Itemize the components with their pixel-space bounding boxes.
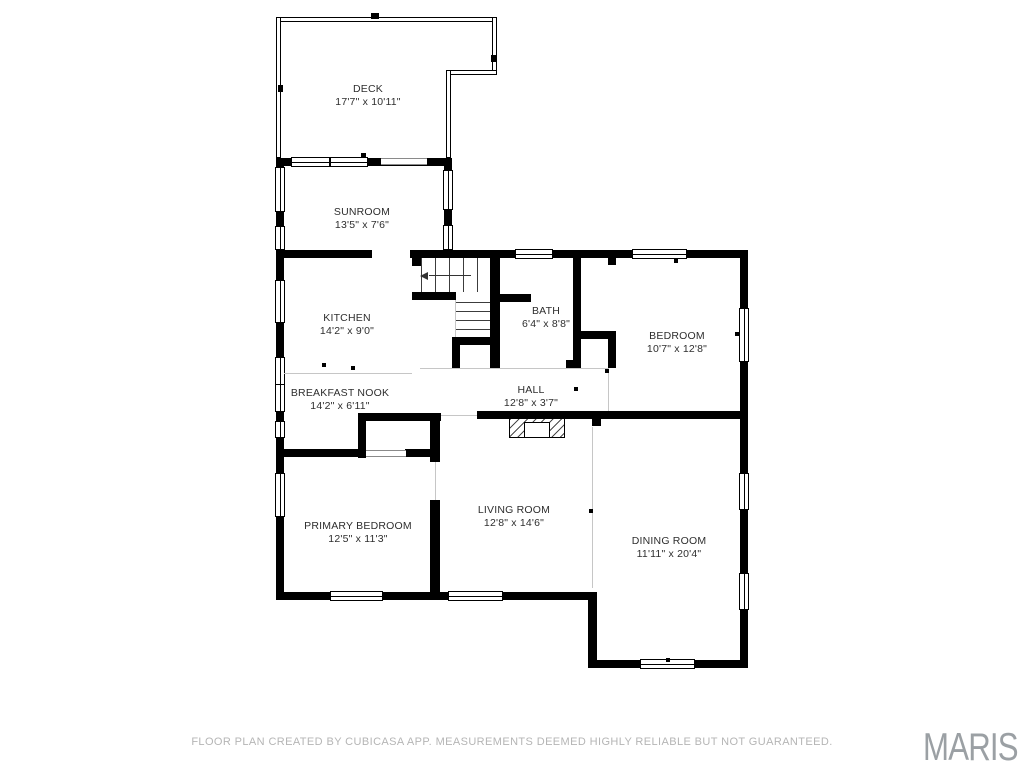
wall: [573, 250, 581, 368]
window: [739, 308, 749, 362]
room-boundary-line: [435, 462, 436, 500]
deck-rail-top: [276, 17, 497, 22]
junction-dot: [486, 413, 490, 417]
window: [515, 249, 553, 259]
room-dims: 12'5" x 11'3": [304, 533, 412, 546]
window: [330, 157, 368, 167]
wall: [495, 294, 531, 302]
deck-rail-right-upper: [492, 17, 497, 75]
wall: [430, 500, 440, 592]
wall: [490, 250, 500, 368]
floor-plan-page: DECK 17'7" x 10'11" SUNROOM 13'5" x 7'6"…: [0, 0, 1024, 768]
junction-dot: [360, 250, 366, 255]
room-label-breakfast-nook: BREAKFAST NOOK 14'2" x 6'11": [291, 387, 389, 413]
room-boundary-line: [441, 415, 477, 416]
room-name: DECK: [335, 83, 400, 96]
junction-dot: [431, 523, 435, 527]
room-boundary-line: [420, 368, 608, 369]
wall: [566, 360, 581, 368]
room-name: SUNROOM: [334, 206, 390, 219]
window: [275, 226, 285, 250]
room-name: HALL: [504, 384, 558, 397]
wall: [412, 258, 421, 266]
room-name: BATH: [522, 305, 570, 318]
wall: [358, 413, 441, 421]
fireplace-firebox: [524, 422, 550, 438]
wall: [608, 258, 616, 265]
window: [275, 473, 285, 517]
stair-arrow-head-icon: [420, 272, 428, 280]
junction-dot: [278, 85, 283, 92]
room-dims: 10'7" x 12'8": [647, 343, 707, 356]
room-dims: 6'4" x 8'8": [522, 318, 570, 331]
window: [448, 591, 503, 601]
door-opening: [366, 450, 406, 457]
junction-dot: [735, 332, 739, 336]
window: [330, 591, 383, 601]
window: [739, 573, 749, 610]
room-label-bedroom: BEDROOM 10'7" x 12'8": [647, 330, 707, 356]
stair-treads-lower: [456, 302, 490, 337]
room-label-primary-bedroom: PRIMARY BEDROOM 12'5" x 11'3": [304, 520, 412, 546]
wall: [276, 592, 597, 600]
window: [632, 249, 687, 259]
disclaimer-text: FLOOR PLAN CREATED BY CUBICASA APP. MEAS…: [0, 736, 1024, 748]
room-dims: 12'8" x 3'7": [504, 397, 558, 410]
room-dims: 14'2" x 9'0": [320, 325, 374, 338]
junction-dot: [589, 509, 593, 513]
room-label-hall: HALL 12'8" x 3'7": [504, 384, 558, 410]
room-label-bath: BATH 6'4" x 8'8": [522, 305, 570, 331]
room-name: KITCHEN: [320, 312, 374, 325]
fireplace: [509, 418, 565, 438]
junction-dot: [491, 55, 496, 62]
wall: [452, 337, 500, 345]
room-dims: 12'8" x 14'6": [478, 517, 550, 530]
deck-rail-step: [448, 70, 497, 75]
junction-dot: [649, 412, 653, 416]
window: [275, 280, 285, 323]
room-label-sunroom: SUNROOM 13'5" x 7'6": [334, 206, 390, 232]
room-name: LIVING ROOM: [478, 504, 550, 517]
room-dims: 14'2" x 6'11": [291, 400, 389, 413]
room-label-kitchen: KITCHEN 14'2" x 9'0": [320, 312, 374, 338]
junction-dot: [666, 658, 670, 662]
floor-plan: DECK 17'7" x 10'11" SUNROOM 13'5" x 7'6"…: [0, 0, 1024, 768]
room-name: BREAKFAST NOOK: [291, 387, 389, 400]
wall: [412, 292, 456, 300]
room-dims: 17'7" x 10'11": [335, 96, 400, 109]
wall: [608, 331, 616, 368]
junction-dot: [361, 153, 366, 158]
window: [275, 167, 285, 212]
wall: [592, 419, 601, 426]
room-boundary-line: [284, 373, 412, 374]
window: [443, 225, 453, 250]
deck-rail-right-lower: [446, 70, 451, 158]
window: [275, 421, 285, 438]
stair-direction-arrow: [429, 275, 471, 276]
window: [275, 384, 285, 412]
wall: [405, 449, 438, 457]
junction-dot: [574, 387, 578, 391]
junction-dot: [674, 259, 678, 263]
window: [291, 157, 330, 167]
room-name: BEDROOM: [647, 330, 707, 343]
room-boundary-line: [592, 427, 593, 588]
room-name: DINING ROOM: [632, 535, 707, 548]
room-label-deck: DECK 17'7" x 10'11": [335, 83, 400, 109]
room-label-dining-room: DINING ROOM 11'11" x 20'4": [632, 535, 707, 561]
room-boundary-line: [608, 368, 609, 411]
wall: [452, 345, 460, 368]
door-opening: [381, 158, 427, 165]
junction-dot: [605, 369, 609, 373]
maris-logo: MARIS: [923, 726, 1018, 768]
window: [443, 170, 453, 210]
junction-dot: [371, 13, 379, 19]
junction-dot: [351, 366, 355, 370]
room-name: PRIMARY BEDROOM: [304, 520, 412, 533]
room-dims: 13'5" x 7'6": [334, 219, 390, 232]
room-dims: 11'11" x 20'4": [632, 548, 707, 561]
wall: [276, 250, 372, 258]
wall: [588, 592, 597, 668]
junction-dot: [320, 450, 324, 454]
room-label-living-room: LIVING ROOM 12'8" x 14'6": [478, 504, 550, 530]
window: [275, 357, 285, 385]
window: [739, 473, 749, 510]
junction-dot: [322, 363, 326, 367]
